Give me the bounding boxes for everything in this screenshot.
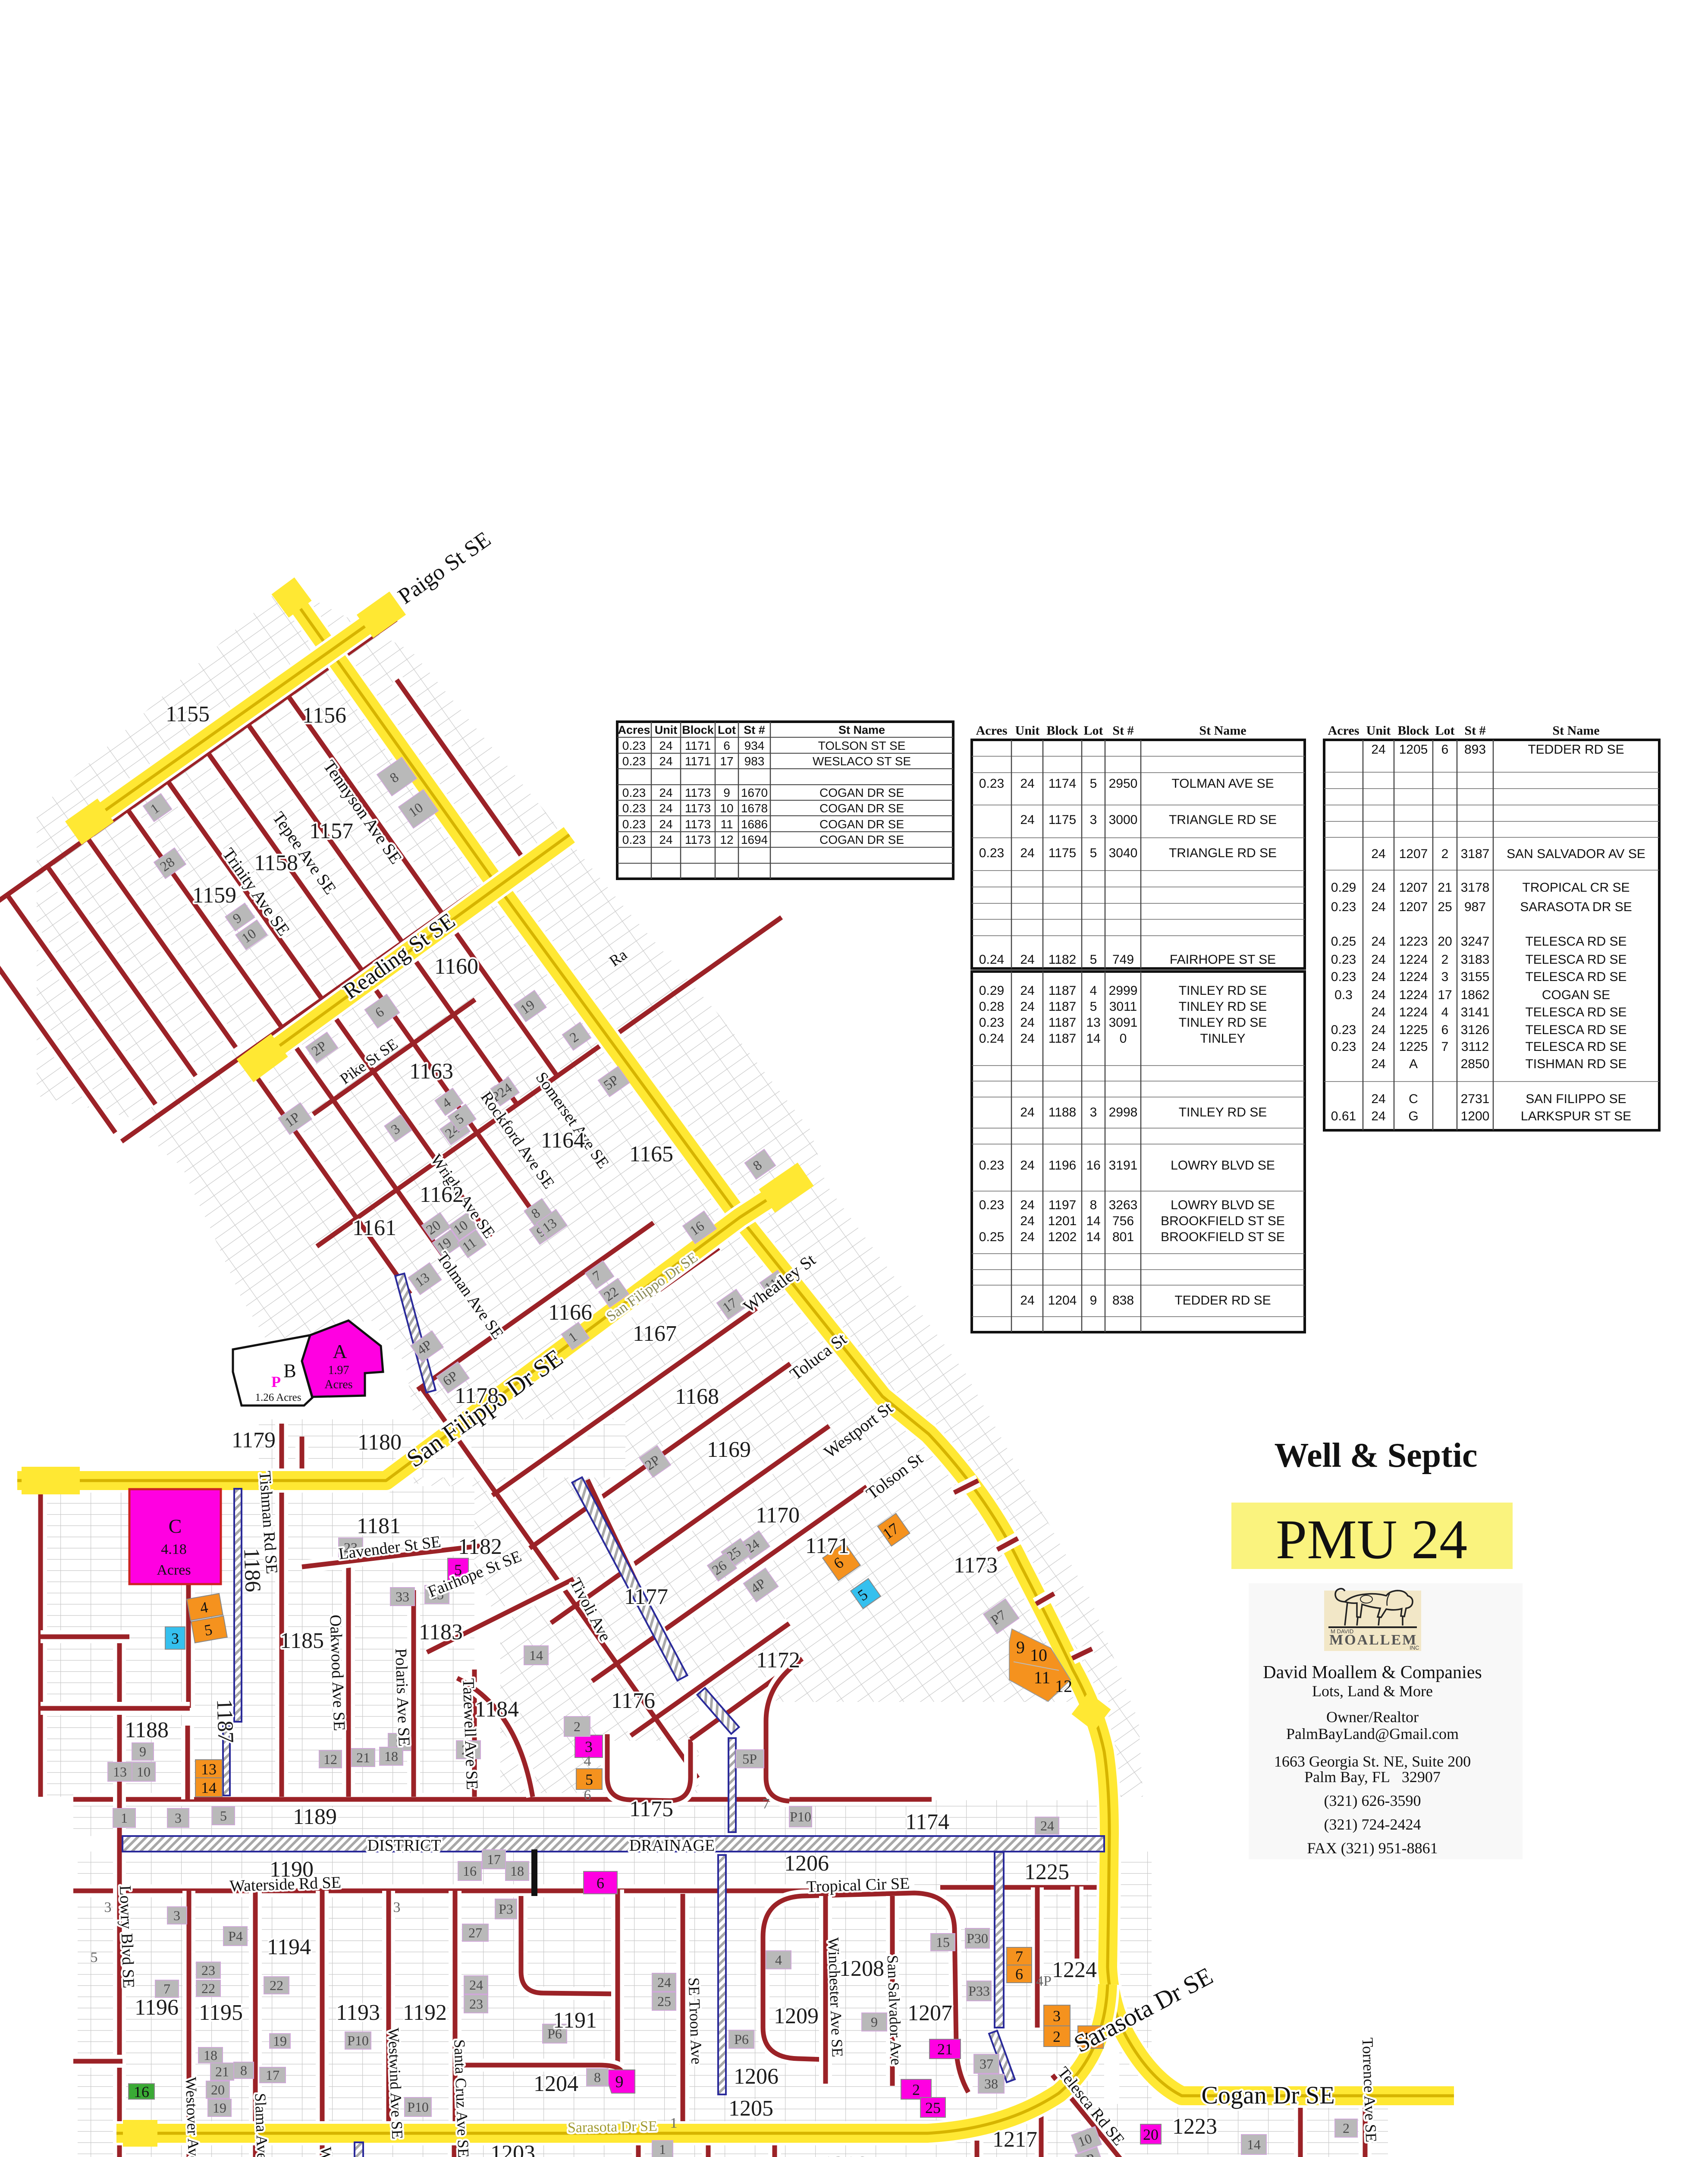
svg-text:18: 18 [204, 2047, 217, 2063]
svg-text:24: 24 [1371, 742, 1385, 757]
svg-text:TEDDER RD SE: TEDDER RD SE [1174, 1293, 1271, 1308]
svg-text:Polaris Ave SE: Polaris Ave SE [392, 1648, 413, 1747]
svg-text:0.23: 0.23 [1331, 1040, 1356, 1054]
svg-text:St #: St # [1112, 723, 1133, 738]
svg-text:Acres: Acres [618, 723, 650, 736]
svg-text:1178: 1178 [455, 1383, 499, 1408]
svg-text:1205: 1205 [1399, 742, 1428, 757]
svg-text:13: 13 [113, 1764, 127, 1780]
svg-text:COGAN SE: COGAN SE [1542, 988, 1610, 1002]
svg-text:5P: 5P [742, 1751, 757, 1767]
svg-text:3191: 3191 [1109, 1158, 1138, 1173]
svg-text:9: 9 [1090, 1293, 1097, 1308]
svg-text:3: 3 [104, 1899, 112, 1915]
svg-text:3141: 3141 [1461, 1005, 1490, 1019]
svg-text:SAN FILIPPO SE: SAN FILIPPO SE [1526, 1092, 1626, 1106]
svg-text:Unit: Unit [655, 723, 677, 736]
svg-text:0.23: 0.23 [1331, 900, 1356, 914]
svg-text:24: 24 [469, 1977, 483, 1993]
svg-text:1187: 1187 [1049, 1000, 1077, 1014]
svg-text:2: 2 [1441, 953, 1449, 967]
svg-text:1180: 1180 [358, 1430, 402, 1455]
svg-text:983: 983 [744, 755, 765, 768]
svg-text:3: 3 [585, 1738, 593, 1755]
svg-text:2999: 2999 [1109, 984, 1138, 998]
svg-text:1187: 1187 [1049, 984, 1077, 998]
svg-text:20: 20 [1438, 934, 1452, 949]
svg-text:24: 24 [1020, 1293, 1034, 1308]
svg-text:7: 7 [763, 1796, 770, 1812]
svg-text:1179: 1179 [232, 1428, 276, 1453]
svg-text:21: 21 [215, 2064, 229, 2079]
svg-text:TEDDER RD SE: TEDDER RD SE [1528, 742, 1624, 757]
svg-text:1.26 Acres: 1.26 Acres [255, 1392, 301, 1403]
svg-text:Block: Block [1397, 723, 1429, 738]
svg-text:0.23: 0.23 [979, 777, 1004, 791]
svg-text:24: 24 [659, 833, 672, 846]
svg-text:4: 4 [584, 1753, 591, 1769]
svg-text:TELESCA RD SE: TELESCA RD SE [1525, 1023, 1626, 1037]
svg-text:Lot: Lot [718, 723, 736, 736]
svg-text:20: 20 [1143, 2126, 1159, 2143]
svg-text:24: 24 [1020, 1016, 1034, 1030]
svg-text:24: 24 [1020, 1000, 1034, 1014]
svg-text:0.23: 0.23 [622, 739, 646, 752]
svg-text:0.28: 0.28 [979, 1000, 1004, 1014]
svg-text:St #: St # [744, 723, 765, 736]
svg-text:Palm Bay, FL 32907: Palm Bay, FL 32907 [1304, 1768, 1441, 1786]
svg-text:1694: 1694 [741, 833, 768, 846]
svg-text:6: 6 [1015, 1965, 1023, 1983]
svg-text:INC: INC [1410, 1644, 1419, 1651]
svg-text:24: 24 [1371, 847, 1385, 861]
svg-text:1187: 1187 [1049, 1031, 1077, 1046]
svg-text:COGAN DR SE: COGAN DR SE [819, 818, 904, 831]
svg-text:1177: 1177 [624, 1585, 668, 1609]
svg-text:1172: 1172 [756, 1648, 800, 1673]
svg-text:0.24: 0.24 [979, 1031, 1004, 1046]
svg-text:1204: 1204 [534, 2072, 578, 2096]
svg-text:Slama Ave SE: Slama Ave SE [251, 2093, 272, 2157]
svg-text:12: 12 [720, 833, 733, 846]
svg-text:2850: 2850 [1461, 1057, 1490, 1071]
svg-text:1183: 1183 [419, 1620, 463, 1644]
svg-text:0.3: 0.3 [1334, 988, 1353, 1002]
svg-text:23: 23 [469, 1996, 483, 2012]
svg-text:BROOKFIELD ST SE: BROOKFIELD ST SE [1161, 1230, 1285, 1244]
svg-text:11: 11 [1034, 1668, 1051, 1687]
svg-text:1185: 1185 [280, 1629, 324, 1653]
svg-text:DISTRICT: DISTRICT [367, 1836, 441, 1855]
svg-text:1204: 1204 [1048, 1293, 1077, 1308]
svg-text:24: 24 [1371, 988, 1385, 1002]
svg-text:2: 2 [1053, 2028, 1061, 2045]
svg-text:13: 13 [1086, 1016, 1100, 1030]
svg-text:1216: 1216 [822, 2152, 867, 2157]
svg-text:24: 24 [1020, 1198, 1034, 1212]
svg-text:24: 24 [1371, 880, 1385, 895]
svg-text:G: G [1408, 1109, 1418, 1123]
svg-text:8: 8 [240, 2063, 247, 2078]
svg-text:1187: 1187 [1049, 1016, 1077, 1030]
svg-text:12: 12 [1055, 1676, 1072, 1696]
svg-text:24: 24 [659, 739, 672, 752]
svg-text:1182: 1182 [1049, 953, 1077, 967]
svg-text:1168: 1168 [675, 1384, 719, 1409]
svg-text:David Moallem & Companies: David Moallem & Companies [1263, 1663, 1482, 1682]
svg-text:2731: 2731 [1461, 1092, 1490, 1106]
svg-text:3: 3 [173, 1908, 180, 1923]
svg-text:0.29: 0.29 [1331, 880, 1356, 895]
svg-text:3: 3 [171, 1630, 179, 1647]
svg-text:7: 7 [163, 1981, 170, 1997]
svg-text:1171: 1171 [685, 739, 711, 752]
svg-text:A: A [333, 1340, 347, 1362]
svg-text:13: 13 [201, 1761, 217, 1778]
svg-text:1197: 1197 [1049, 1198, 1077, 1212]
svg-text:0.23: 0.23 [622, 802, 646, 815]
svg-text:22: 22 [270, 1978, 283, 1993]
svg-text:0.23: 0.23 [1331, 1023, 1356, 1037]
svg-text:1190: 1190 [270, 1857, 314, 1882]
svg-text:1209: 1209 [774, 2004, 819, 2028]
svg-text:1159: 1159 [192, 883, 236, 908]
svg-text:1191: 1191 [553, 2008, 597, 2033]
svg-text:1202: 1202 [1048, 1230, 1077, 1244]
svg-text:1181: 1181 [357, 1514, 401, 1538]
svg-text:16: 16 [463, 1863, 477, 1879]
svg-text:3: 3 [1090, 1105, 1097, 1119]
svg-text:Westover Ave SE: Westover Ave SE [182, 2077, 204, 2157]
svg-text:1225: 1225 [1024, 1860, 1069, 1884]
svg-text:P10: P10 [407, 2099, 429, 2115]
svg-text:P10: P10 [790, 1809, 811, 1824]
svg-text:1170: 1170 [756, 1503, 800, 1528]
svg-text:1200: 1200 [1461, 1109, 1490, 1123]
svg-text:749: 749 [1112, 953, 1134, 967]
svg-text:24: 24 [1020, 1031, 1034, 1046]
svg-text:0.23: 0.23 [622, 818, 646, 831]
svg-text:756: 756 [1112, 1214, 1134, 1228]
svg-text:24: 24 [1020, 984, 1034, 998]
svg-text:St Name: St Name [838, 723, 885, 736]
svg-text:1670: 1670 [741, 786, 768, 799]
svg-text:4: 4 [1441, 1005, 1449, 1019]
svg-text:6: 6 [1441, 742, 1449, 757]
svg-text:1224: 1224 [1399, 1005, 1428, 1019]
svg-text:24: 24 [1371, 900, 1385, 914]
svg-text:19: 19 [213, 2100, 226, 2116]
svg-text:24: 24 [1371, 953, 1385, 967]
svg-text:1862: 1862 [1461, 988, 1490, 1002]
svg-text:0.24: 0.24 [979, 953, 1004, 967]
svg-text:5: 5 [1090, 1000, 1097, 1014]
svg-text:5: 5 [220, 1808, 227, 1824]
svg-text:1195: 1195 [199, 2000, 243, 2025]
svg-text:14: 14 [1086, 1214, 1100, 1228]
svg-text:0.23: 0.23 [622, 755, 646, 768]
svg-text:Block: Block [682, 723, 714, 736]
svg-text:1194: 1194 [267, 1935, 311, 1959]
svg-text:Lots, Land & More: Lots, Land & More [1312, 1682, 1433, 1700]
svg-text:24: 24 [1371, 1040, 1385, 1054]
svg-text:1182: 1182 [458, 1534, 502, 1559]
svg-text:14: 14 [1247, 2137, 1261, 2152]
svg-text:14: 14 [201, 1779, 217, 1796]
svg-text:19: 19 [273, 2033, 287, 2049]
svg-text:8: 8 [1090, 1198, 1097, 1212]
svg-text:1157: 1157 [309, 819, 353, 843]
svg-text:15: 15 [936, 1934, 950, 1950]
svg-text:BROOKFIELD ST SE: BROOKFIELD ST SE [1161, 1214, 1285, 1228]
svg-text:0.29: 0.29 [979, 984, 1004, 998]
svg-text:FAX (321) 951-8861: FAX (321) 951-8861 [1307, 1839, 1438, 1857]
svg-text:14: 14 [1086, 1230, 1100, 1244]
svg-text:24: 24 [1020, 813, 1034, 827]
svg-text:1161: 1161 [352, 1216, 396, 1240]
svg-text:11: 11 [720, 818, 733, 831]
svg-text:0.23: 0.23 [979, 1016, 1004, 1030]
svg-text:TINLEY RD SE: TINLEY RD SE [1179, 1016, 1267, 1030]
svg-text:0.25: 0.25 [979, 1230, 1004, 1244]
svg-text:P10: P10 [347, 2033, 369, 2048]
svg-text:1208: 1208 [839, 1956, 884, 1981]
svg-text:PMU 24: PMU 24 [1276, 1509, 1467, 1571]
svg-text:PalmBayLand@Gmail.com: PalmBayLand@Gmail.com [1286, 1725, 1459, 1742]
svg-text:893: 893 [1464, 742, 1486, 757]
svg-text:9: 9 [615, 2073, 624, 2091]
svg-text:1224: 1224 [1052, 1958, 1097, 1982]
svg-text:Lot: Lot [1084, 723, 1103, 738]
svg-text:10: 10 [137, 1764, 151, 1780]
svg-text:6: 6 [597, 1874, 604, 1892]
svg-text:Tropical Cir SE: Tropical Cir SE [806, 1874, 910, 1896]
svg-text:9: 9 [871, 2014, 878, 2030]
svg-text:24: 24 [1371, 1057, 1385, 1071]
svg-text:1173: 1173 [954, 1553, 998, 1578]
svg-text:1188: 1188 [1049, 1105, 1077, 1119]
svg-text:1173: 1173 [685, 833, 711, 846]
svg-text:1189: 1189 [293, 1805, 337, 1829]
svg-text:1206: 1206 [784, 1851, 829, 1876]
svg-text:5: 5 [585, 1771, 593, 1788]
svg-text:TINLEY RD SE: TINLEY RD SE [1179, 1000, 1267, 1014]
svg-text:SE Troon Ave: SE Troon Ave [685, 1977, 705, 2065]
svg-text:25: 25 [925, 2099, 941, 2116]
svg-text:0.23: 0.23 [622, 833, 646, 846]
svg-text:0.23: 0.23 [979, 1158, 1004, 1173]
svg-text:25: 25 [1438, 900, 1452, 914]
svg-text:COGAN DR SE: COGAN DR SE [819, 786, 904, 799]
svg-text:1.97: 1.97 [328, 1364, 349, 1377]
svg-text:3112: 3112 [1461, 1040, 1489, 1054]
svg-text:2: 2 [574, 1719, 581, 1734]
svg-text:10: 10 [720, 802, 733, 815]
svg-text:3040: 3040 [1109, 846, 1138, 860]
svg-text:0.23: 0.23 [1331, 953, 1356, 967]
svg-text:0.23: 0.23 [979, 846, 1004, 860]
svg-text:1165: 1165 [629, 1142, 673, 1167]
svg-text:4: 4 [1090, 984, 1097, 998]
svg-text:1686: 1686 [741, 818, 768, 831]
svg-text:LOWRY BLVD SE: LOWRY BLVD SE [1171, 1158, 1275, 1173]
svg-text:37: 37 [980, 2056, 993, 2072]
svg-text:17: 17 [1438, 988, 1452, 1002]
svg-text:TISHMAN RD SE: TISHMAN RD SE [1525, 1057, 1626, 1071]
svg-text:987: 987 [1464, 900, 1486, 914]
svg-text:2998: 2998 [1109, 1105, 1138, 1119]
svg-text:24: 24 [1020, 1105, 1034, 1119]
svg-text:24: 24 [1371, 1023, 1385, 1037]
svg-text:17: 17 [720, 755, 733, 768]
svg-text:24: 24 [1020, 1158, 1034, 1173]
svg-text:1196: 1196 [1049, 1158, 1077, 1173]
svg-text:1156: 1156 [302, 703, 346, 728]
svg-text:1155: 1155 [166, 702, 210, 726]
svg-text:1169: 1169 [707, 1437, 751, 1462]
svg-text:TOLSON ST SE: TOLSON ST SE [818, 739, 906, 752]
svg-text:1206: 1206 [734, 2064, 779, 2089]
svg-text:24: 24 [1020, 953, 1034, 967]
svg-text:Lowry Blvd SE: Lowry Blvd SE [116, 1885, 138, 1989]
svg-text:Acres: Acres [976, 723, 1008, 738]
svg-text:21: 21 [937, 2041, 953, 2058]
svg-text:1162: 1162 [420, 1182, 464, 1207]
svg-text:18: 18 [384, 1748, 398, 1764]
svg-text:4: 4 [775, 1952, 782, 1968]
svg-text:TINLEY: TINLEY [1200, 1031, 1245, 1046]
svg-text:B: B [283, 1360, 296, 1381]
svg-text:Lot: Lot [1435, 723, 1455, 738]
svg-text:3187: 3187 [1461, 847, 1490, 861]
svg-text:1160: 1160 [434, 954, 478, 979]
svg-text:1173: 1173 [685, 802, 711, 815]
svg-text:TINLEY RD SE: TINLEY RD SE [1179, 984, 1267, 998]
svg-text:3247: 3247 [1461, 934, 1490, 949]
svg-text:38: 38 [984, 2076, 998, 2091]
svg-text:MOALLEM: MOALLEM [1329, 1632, 1417, 1648]
svg-text:Acres: Acres [324, 1378, 352, 1391]
svg-text:TELESCA RD SE: TELESCA RD SE [1525, 1040, 1626, 1054]
svg-text:St Name: St Name [1199, 723, 1246, 738]
svg-text:934: 934 [744, 739, 765, 752]
svg-text:3011: 3011 [1109, 1000, 1137, 1014]
svg-text:St #: St # [1464, 723, 1485, 738]
svg-text:21: 21 [356, 1750, 370, 1765]
svg-text:Block: Block [1046, 723, 1078, 738]
svg-text:FAIRHOPE ST SE: FAIRHOPE ST SE [1170, 953, 1276, 967]
svg-text:1158: 1158 [254, 851, 298, 875]
svg-text:3183: 3183 [1461, 953, 1490, 967]
svg-text:3: 3 [1053, 2007, 1061, 2025]
svg-text:TRIANGLE RD SE: TRIANGLE RD SE [1169, 813, 1277, 827]
svg-text:1225: 1225 [1399, 1040, 1428, 1054]
svg-text:P3: P3 [499, 1901, 513, 1917]
svg-text:1223: 1223 [1172, 2114, 1217, 2139]
svg-text:1217: 1217 [992, 2127, 1037, 2152]
svg-text:3155: 3155 [1461, 970, 1490, 984]
svg-text:2: 2 [912, 2081, 920, 2098]
svg-text:4.18: 4.18 [161, 1541, 187, 1557]
svg-text:1176: 1176 [611, 1688, 655, 1713]
svg-text:P6: P6 [734, 2031, 749, 2047]
svg-text:1193: 1193 [336, 2000, 380, 2025]
svg-text:Sarasota Dr SE: Sarasota Dr SE [568, 2118, 657, 2136]
svg-text:TELESCA RD SE: TELESCA RD SE [1525, 1005, 1626, 1019]
svg-text:1207: 1207 [1399, 847, 1428, 861]
svg-text:3: 3 [393, 1899, 401, 1915]
svg-text:1187: 1187 [212, 1698, 238, 1743]
svg-text:SARASOTA DR SE: SARASOTA DR SE [1520, 900, 1632, 914]
svg-text:1192: 1192 [403, 2000, 447, 2025]
svg-text:3: 3 [1441, 970, 1449, 984]
svg-text:Unit: Unit [1366, 723, 1391, 738]
svg-text:COGAN DR SE: COGAN DR SE [819, 833, 904, 846]
svg-text:9: 9 [1016, 1638, 1025, 1657]
svg-text:3178: 3178 [1461, 880, 1490, 895]
svg-text:5: 5 [91, 1949, 98, 1965]
svg-text:12: 12 [323, 1751, 337, 1767]
svg-text:4P: 4P [1036, 1973, 1052, 1989]
svg-text:3263: 3263 [1109, 1198, 1138, 1212]
svg-text:1: 1 [659, 2141, 666, 2157]
svg-text:LARKSPUR ST SE: LARKSPUR ST SE [1521, 1109, 1631, 1123]
svg-text:LOWRY BLVD SE: LOWRY BLVD SE [1171, 1198, 1275, 1212]
svg-text:24: 24 [657, 1975, 671, 1990]
svg-text:23: 23 [201, 1962, 215, 1978]
svg-text:0.23: 0.23 [1331, 970, 1356, 984]
svg-text:25: 25 [657, 1993, 671, 2009]
svg-text:17: 17 [266, 2067, 279, 2083]
svg-text:COGAN DR SE: COGAN DR SE [819, 802, 904, 815]
svg-text:2: 2 [1343, 2120, 1350, 2136]
svg-text:17: 17 [487, 1852, 501, 1867]
svg-text:33: 33 [396, 1589, 409, 1604]
svg-text:3126: 3126 [1461, 1023, 1490, 1037]
svg-text:A: A [1409, 1057, 1418, 1071]
svg-text:9: 9 [723, 786, 730, 799]
svg-text:7: 7 [1441, 1040, 1449, 1054]
svg-text:1175: 1175 [1049, 846, 1077, 860]
svg-text:P33: P33 [968, 1983, 990, 1999]
svg-text:3000: 3000 [1109, 813, 1138, 827]
svg-text:1173: 1173 [685, 818, 711, 831]
svg-text:24: 24 [1371, 970, 1385, 984]
svg-text:Well & Septic: Well & Septic [1274, 1437, 1477, 1475]
svg-text:1224: 1224 [1399, 970, 1428, 984]
svg-text:0.23: 0.23 [979, 1198, 1004, 1212]
svg-text:Owner/Realtor: Owner/Realtor [1326, 1708, 1419, 1726]
svg-text:24: 24 [659, 818, 672, 831]
svg-text:Acres: Acres [157, 1562, 191, 1578]
svg-text:14: 14 [529, 1648, 543, 1663]
svg-text:27: 27 [468, 1925, 482, 1940]
svg-text:Unit: Unit [1015, 723, 1040, 738]
svg-text:1164: 1164 [541, 1128, 585, 1153]
svg-text:20: 20 [211, 2082, 225, 2097]
svg-text:TELESCA RD SE: TELESCA RD SE [1525, 953, 1626, 967]
svg-text:St Name: St Name [1552, 723, 1599, 738]
svg-text:Cogan Dr SE: Cogan Dr SE [1201, 2081, 1334, 2109]
svg-text:24: 24 [1020, 846, 1034, 860]
svg-text:1205: 1205 [728, 2096, 773, 2121]
svg-text:1174: 1174 [1049, 777, 1077, 791]
svg-text:24: 24 [1371, 1005, 1385, 1019]
svg-text:24: 24 [1371, 1092, 1385, 1106]
svg-text:TROPICAL CR SE: TROPICAL CR SE [1523, 880, 1630, 895]
svg-text:1207: 1207 [1399, 880, 1428, 895]
svg-text:801: 801 [1112, 1230, 1134, 1244]
